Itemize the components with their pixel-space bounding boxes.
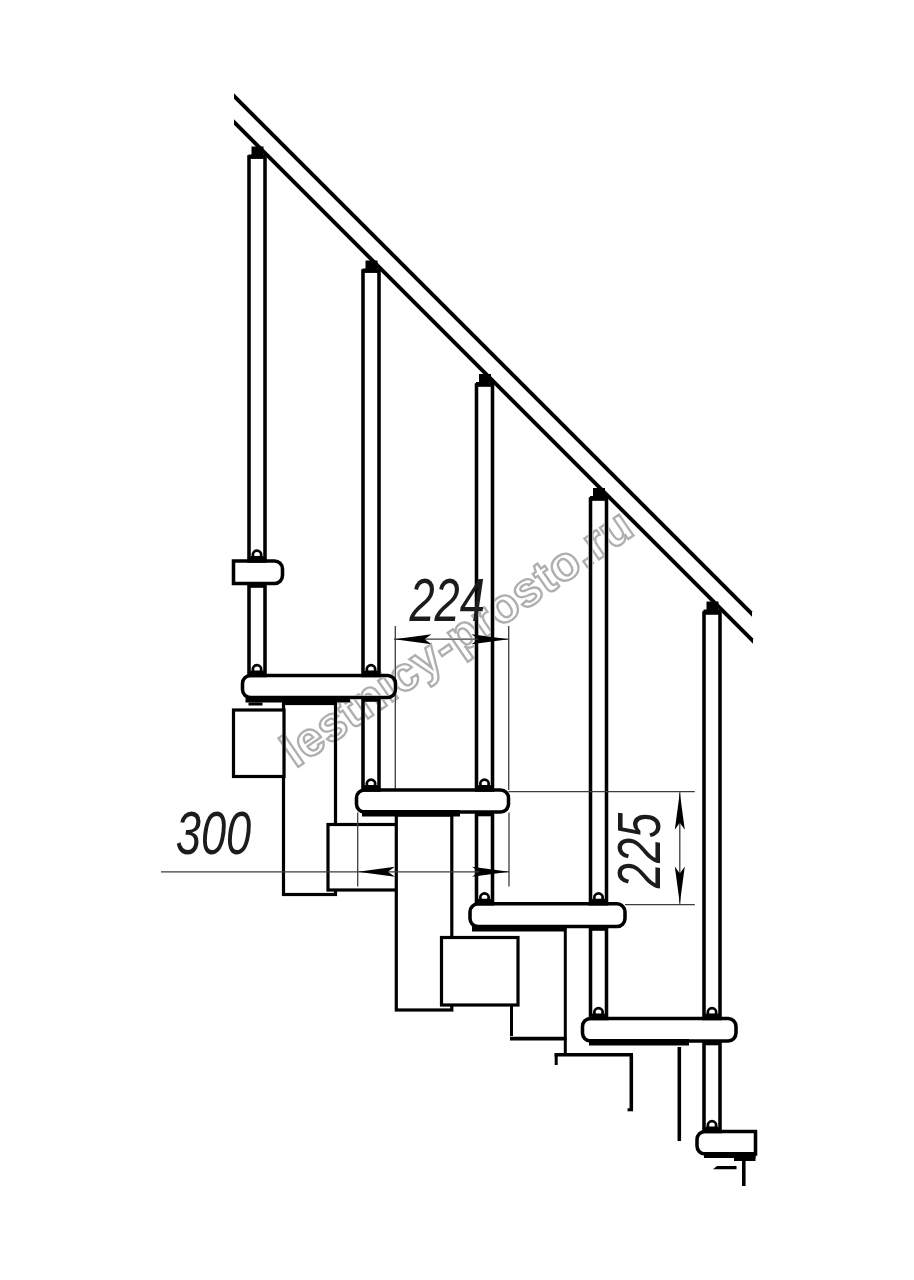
svg-text:300: 300 [176,798,252,868]
svg-text:225: 225 [604,812,674,889]
